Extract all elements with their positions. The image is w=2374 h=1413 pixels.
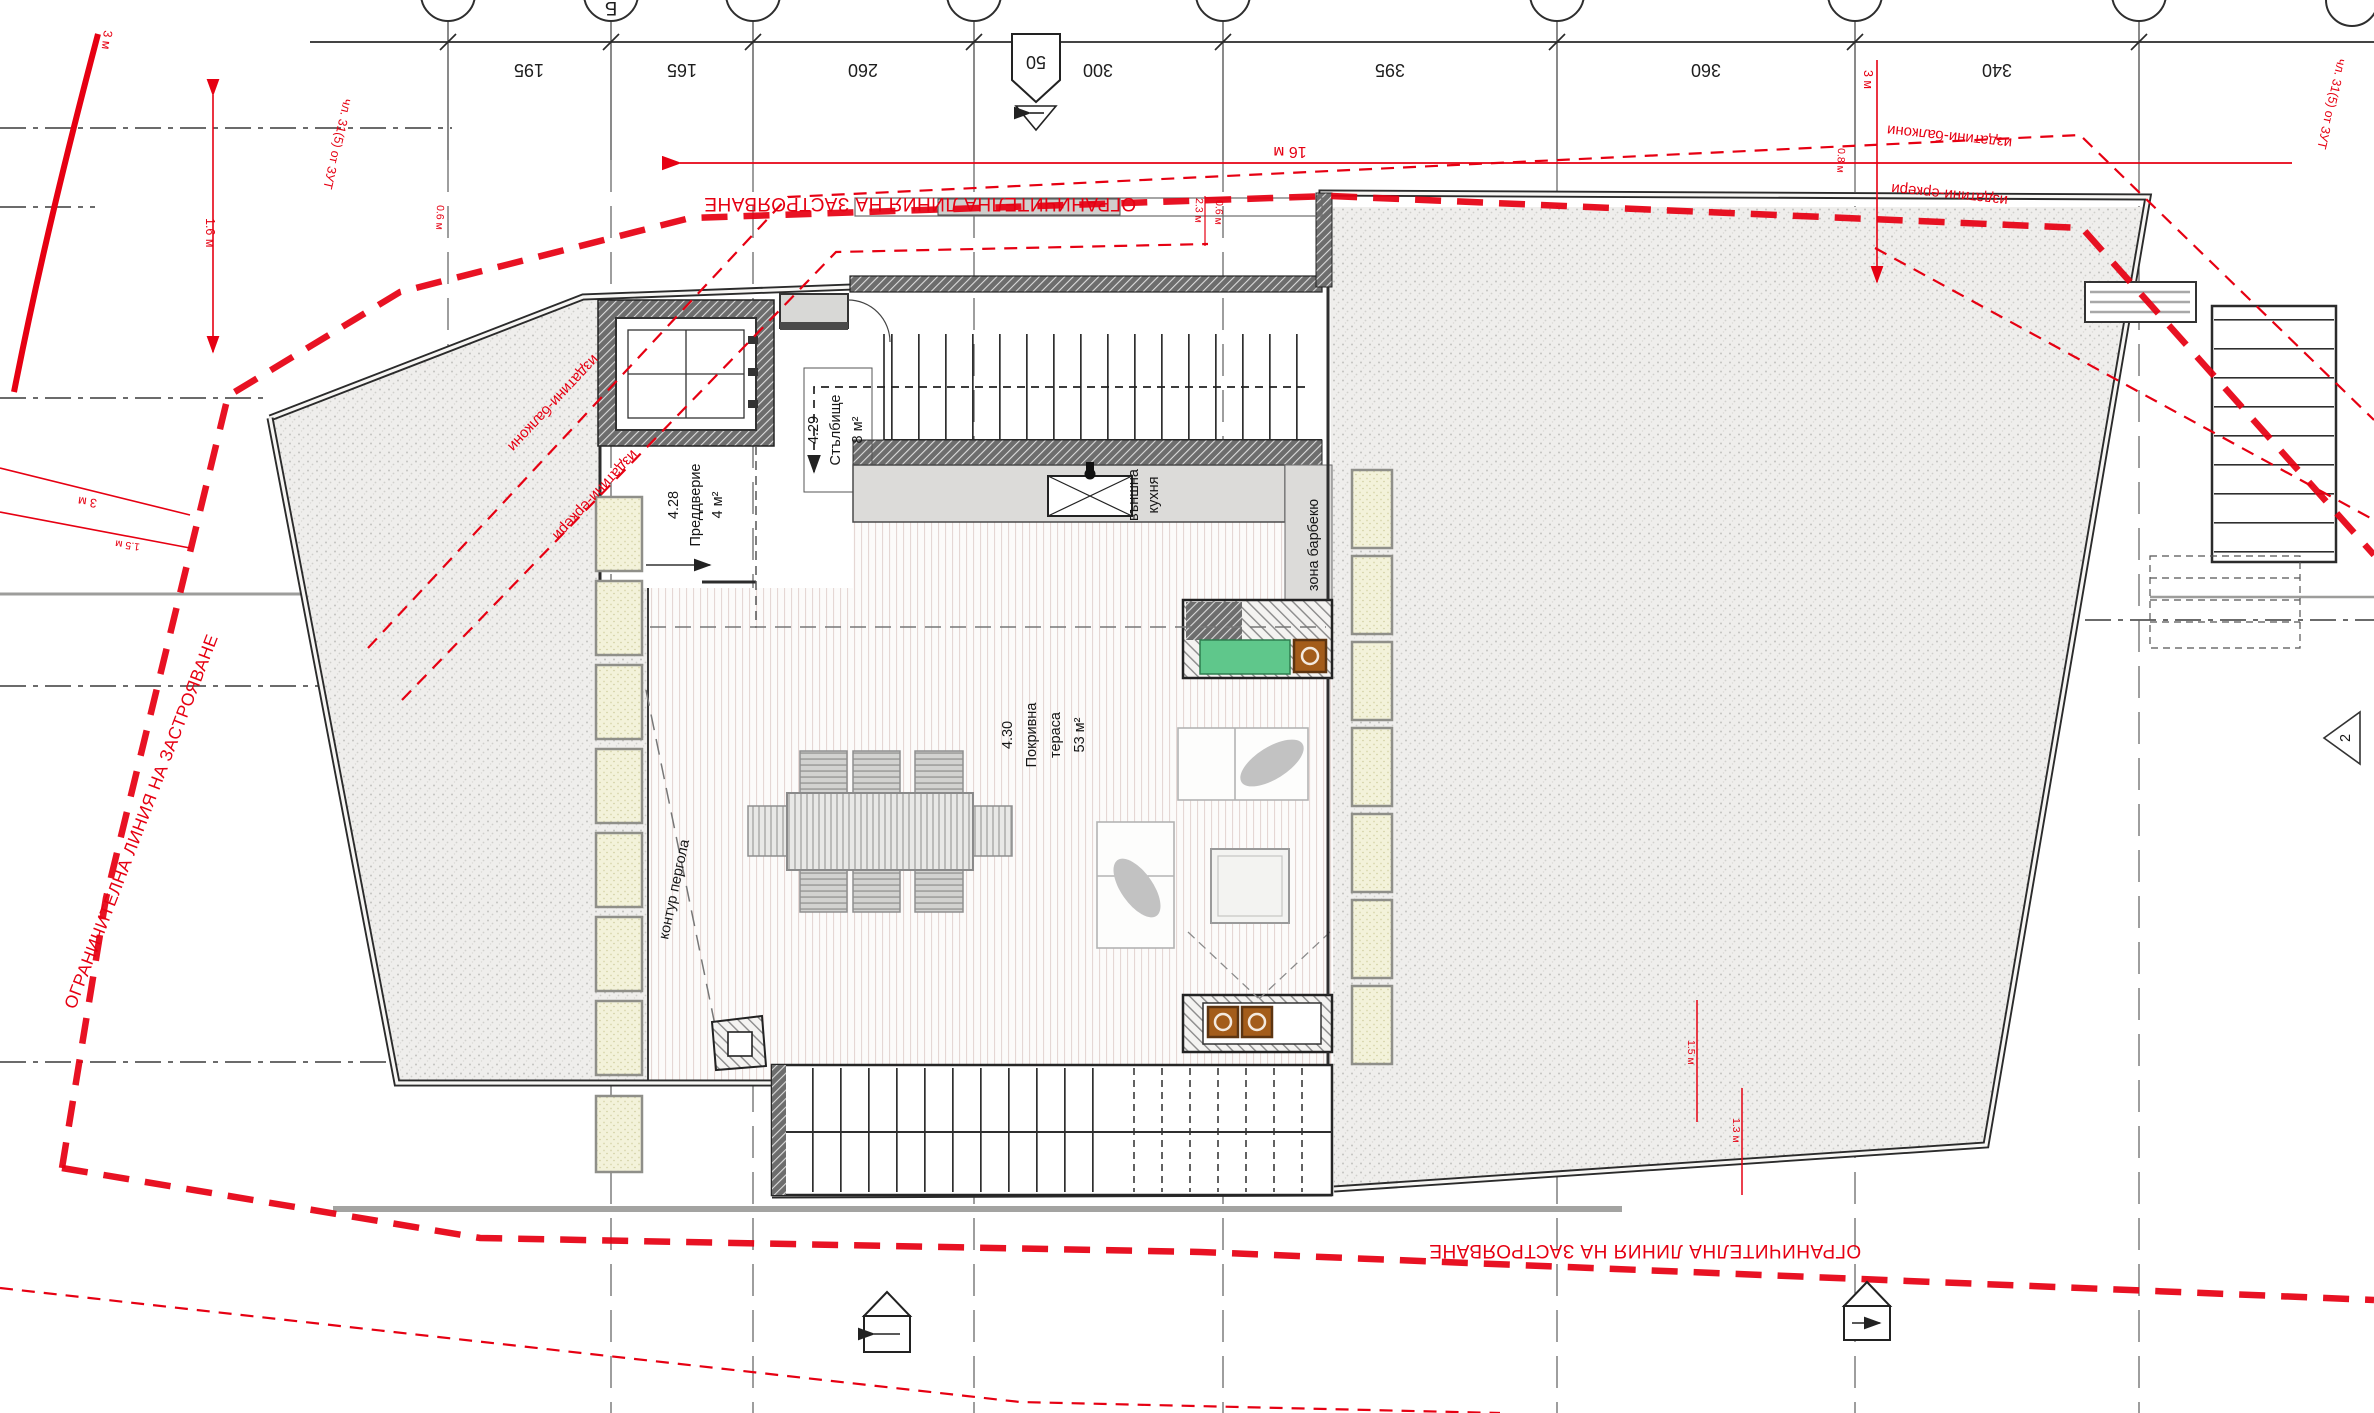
planters-right [1352,470,1392,1064]
kitchen-label-2: кухня [1146,477,1162,514]
dim-16m: 16 м [1273,143,1306,160]
dim-1-5m-left: 1.5 м [115,537,141,552]
right-balcony [2085,282,2196,322]
dim-1-3m-bottom: 1.3 м [1730,1118,1742,1143]
floor-plan-canvas: Б 195 165 260 300 395 360 340 50 [0,0,2374,1413]
ghost-stair [2150,556,2300,648]
gravel-roof-right [1330,207,2146,1188]
property-boundary [14,34,98,392]
planters-left [596,497,642,1172]
bbq-zone-label: зона барбекю [1306,499,1322,591]
gravel-roof-left [270,298,648,1083]
section-marker-top: 50 [1012,34,1060,130]
room-430-area: 53 м² [1072,717,1088,752]
section-marker-bottom-right [1844,1282,1890,1340]
grid-bubbles [421,0,2374,26]
room-428-area: 4 м² [710,491,726,518]
setback-label-left: ОГРАНИЧИТЕЛНА ЛИНИЯ НА ЗАСТРОЯВАНЕ [60,631,222,1011]
law-ref-left: чл. 31(5) от ЗУТ [320,97,354,190]
dim-2-3m: 2.3 м [1192,198,1205,223]
burner-2 [1242,1007,1272,1037]
room-430-name2: тераса [1048,711,1064,758]
coffee-table [1211,849,1289,923]
dim-1-6m: 1.6 м [203,218,217,247]
room-429-name: Стълбище [828,395,844,466]
dim-0-6m: 0.6 м [1212,200,1225,225]
dim-260: 260 [848,60,878,80]
bays-label-right: издатини-еркери [1890,180,2008,209]
green-planter [1200,640,1290,674]
room-429-area: 8 м² [850,416,866,443]
setback-label-top: ОГРАНИЧИТЕЛНА ЛИНИЯ НА ЗАСТРОЯВАНЕ [704,193,1136,214]
right-roof-west-wall [1316,193,1332,287]
room-428-name: Преддверие [688,464,704,547]
room-428-num: 4.28 [666,491,682,519]
level-marker-2-label: 2 [2338,734,2354,742]
dining-table [787,793,973,870]
dim-395: 395 [1375,60,1405,80]
room-430-num: 4.30 [1000,721,1016,749]
dim-195: 195 [514,60,544,80]
dim-300: 300 [1083,60,1113,80]
building [270,193,2336,1195]
core-top-wall [850,276,1322,292]
section-marker-label: 50 [1026,52,1046,72]
bbq-niche-top [1183,600,1332,678]
room-430-name1: Покривна [1024,702,1040,768]
dim-3m-topleft: 3 м [99,30,115,51]
grill-unit [1294,640,1326,672]
dim-0-6m-left: 0.6 м [433,205,446,230]
dim-3m-left: 3 м [77,494,98,511]
room-429-num: 4.29 [806,416,822,444]
balconies-label-right: издатини-балкони [1886,121,2013,151]
grid-bubble-label: Б [605,0,617,18]
setback-label-bottom: ОГРАНИЧИТЕЛНА ЛИНИЯ НА ЗАСТРОЯВАНЕ [1429,1240,1861,1261]
law-ref-right: чл. 31(5) от ЗУТ [2314,57,2348,150]
dim-340: 340 [1982,60,2012,80]
stair-south-wall [853,440,1322,465]
level-marker-2: 2 [2324,712,2360,764]
dim-3m-right: 3 м [1861,70,1875,89]
dim-1-5m-bottom: 1.5 м [1685,1040,1697,1065]
dim-0-8m: 0.8 м [1834,148,1847,173]
burner-1 [1208,1007,1238,1037]
section-marker-bottom-center [864,1292,910,1352]
kitchen-label-1: външна [1126,468,1142,521]
stair-429 [780,294,1322,492]
dim-360: 360 [1691,60,1721,80]
dim-165: 165 [667,60,697,80]
bottom-stair [772,1065,1332,1195]
